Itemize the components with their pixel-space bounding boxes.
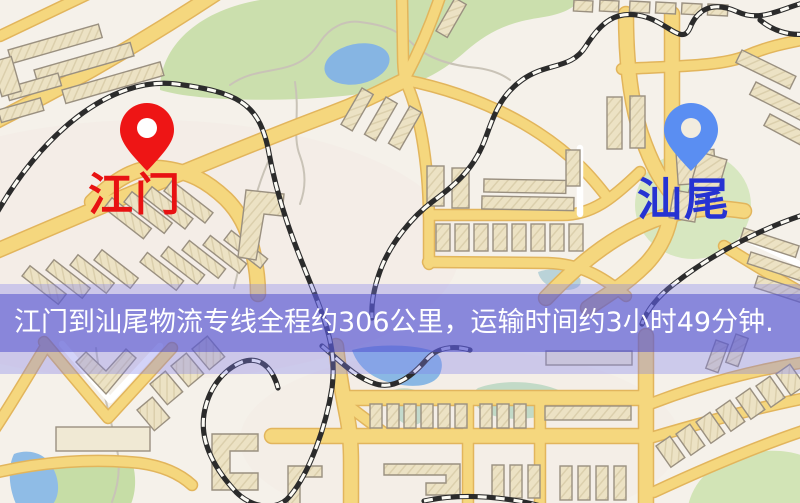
origin-label: 江门	[88, 172, 182, 217]
banner-text: 江门到汕尾物流专线全程约306公里，运输时间约3小时49分钟.	[0, 294, 774, 352]
map-background	[0, 0, 800, 503]
origin-pin-icon[interactable]	[118, 101, 176, 173]
destination-pin-hole	[681, 118, 701, 138]
destination-pin-icon[interactable]	[662, 101, 720, 173]
info-banner: 江门到汕尾物流专线全程约306公里，运输时间约3小时49分钟.	[0, 294, 800, 352]
origin-pin-hole	[137, 118, 157, 138]
map-canvas[interactable]: 江门 汕尾 江门到汕尾物流专线全程约306公里，运输时间约3小时49分钟.	[0, 0, 800, 503]
destination-label: 汕尾	[637, 177, 731, 222]
